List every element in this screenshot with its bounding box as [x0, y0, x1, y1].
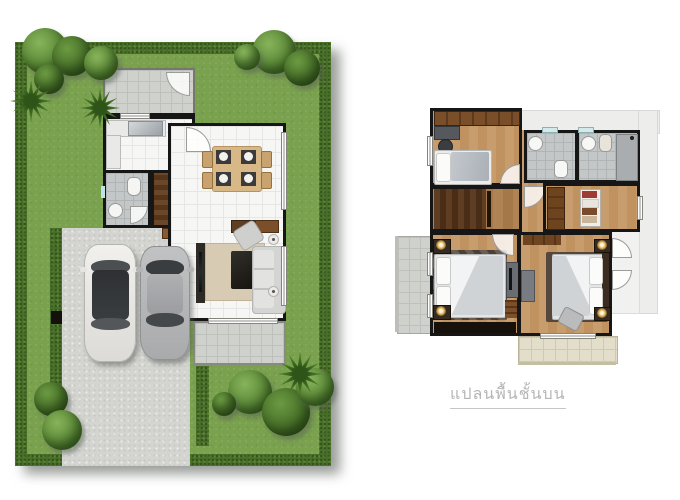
bedroom3-window: [427, 136, 433, 166]
toilet-bath1: [554, 160, 568, 178]
balcony-bottom: [518, 336, 618, 364]
balcony-door: [427, 294, 433, 318]
balcony-bottom-railing: [518, 362, 616, 365]
wardrobe-bedroom2: [434, 322, 516, 333]
ladder-shelf: [505, 300, 517, 318]
upper-floor-layer: แปลนพื้นชั้นบน: [0, 0, 680, 500]
lamp: [436, 240, 446, 250]
lamp: [597, 308, 607, 318]
closet-wardrobe: [547, 187, 565, 230]
folded-clothes: [582, 216, 597, 223]
balcony-left: [397, 236, 433, 334]
dresser-master: [521, 270, 535, 302]
pillow: [589, 257, 603, 285]
stairs-upper-rail: [487, 191, 491, 227]
shower-bath2: [616, 134, 638, 181]
wardrobe-bedroom3: [434, 111, 520, 126]
tv-bedroom2: [509, 268, 512, 290]
closet-window: [637, 196, 643, 220]
blanket: [451, 152, 489, 181]
bath1-window: [542, 127, 558, 133]
floor-plan-image: แปลนพื้นชั้นบน: [0, 0, 680, 500]
sink-bath2: [581, 136, 596, 151]
master-balcony-door: [540, 333, 596, 339]
desk: [434, 126, 460, 140]
upper-floor-caption: แปลนพื้นชั้นบน: [450, 382, 566, 409]
duvet: [552, 256, 589, 316]
shower-head: [630, 136, 634, 140]
lamp: [436, 306, 446, 316]
sink-bath1: [528, 136, 543, 151]
balcony-left-railing: [395, 236, 398, 332]
lamp: [597, 240, 607, 250]
folded-clothes: [582, 191, 597, 198]
balcony-door: [427, 252, 433, 276]
folded-clothes: [582, 208, 597, 215]
pillow: [436, 153, 451, 182]
stairs-upper: [434, 189, 486, 229]
wardrobe-master: [523, 235, 561, 245]
toilet-bath2: [599, 134, 612, 152]
bath2-window: [578, 127, 594, 133]
pillow: [436, 257, 451, 285]
folded-clothes: [582, 199, 599, 208]
duvet: [451, 256, 503, 315]
